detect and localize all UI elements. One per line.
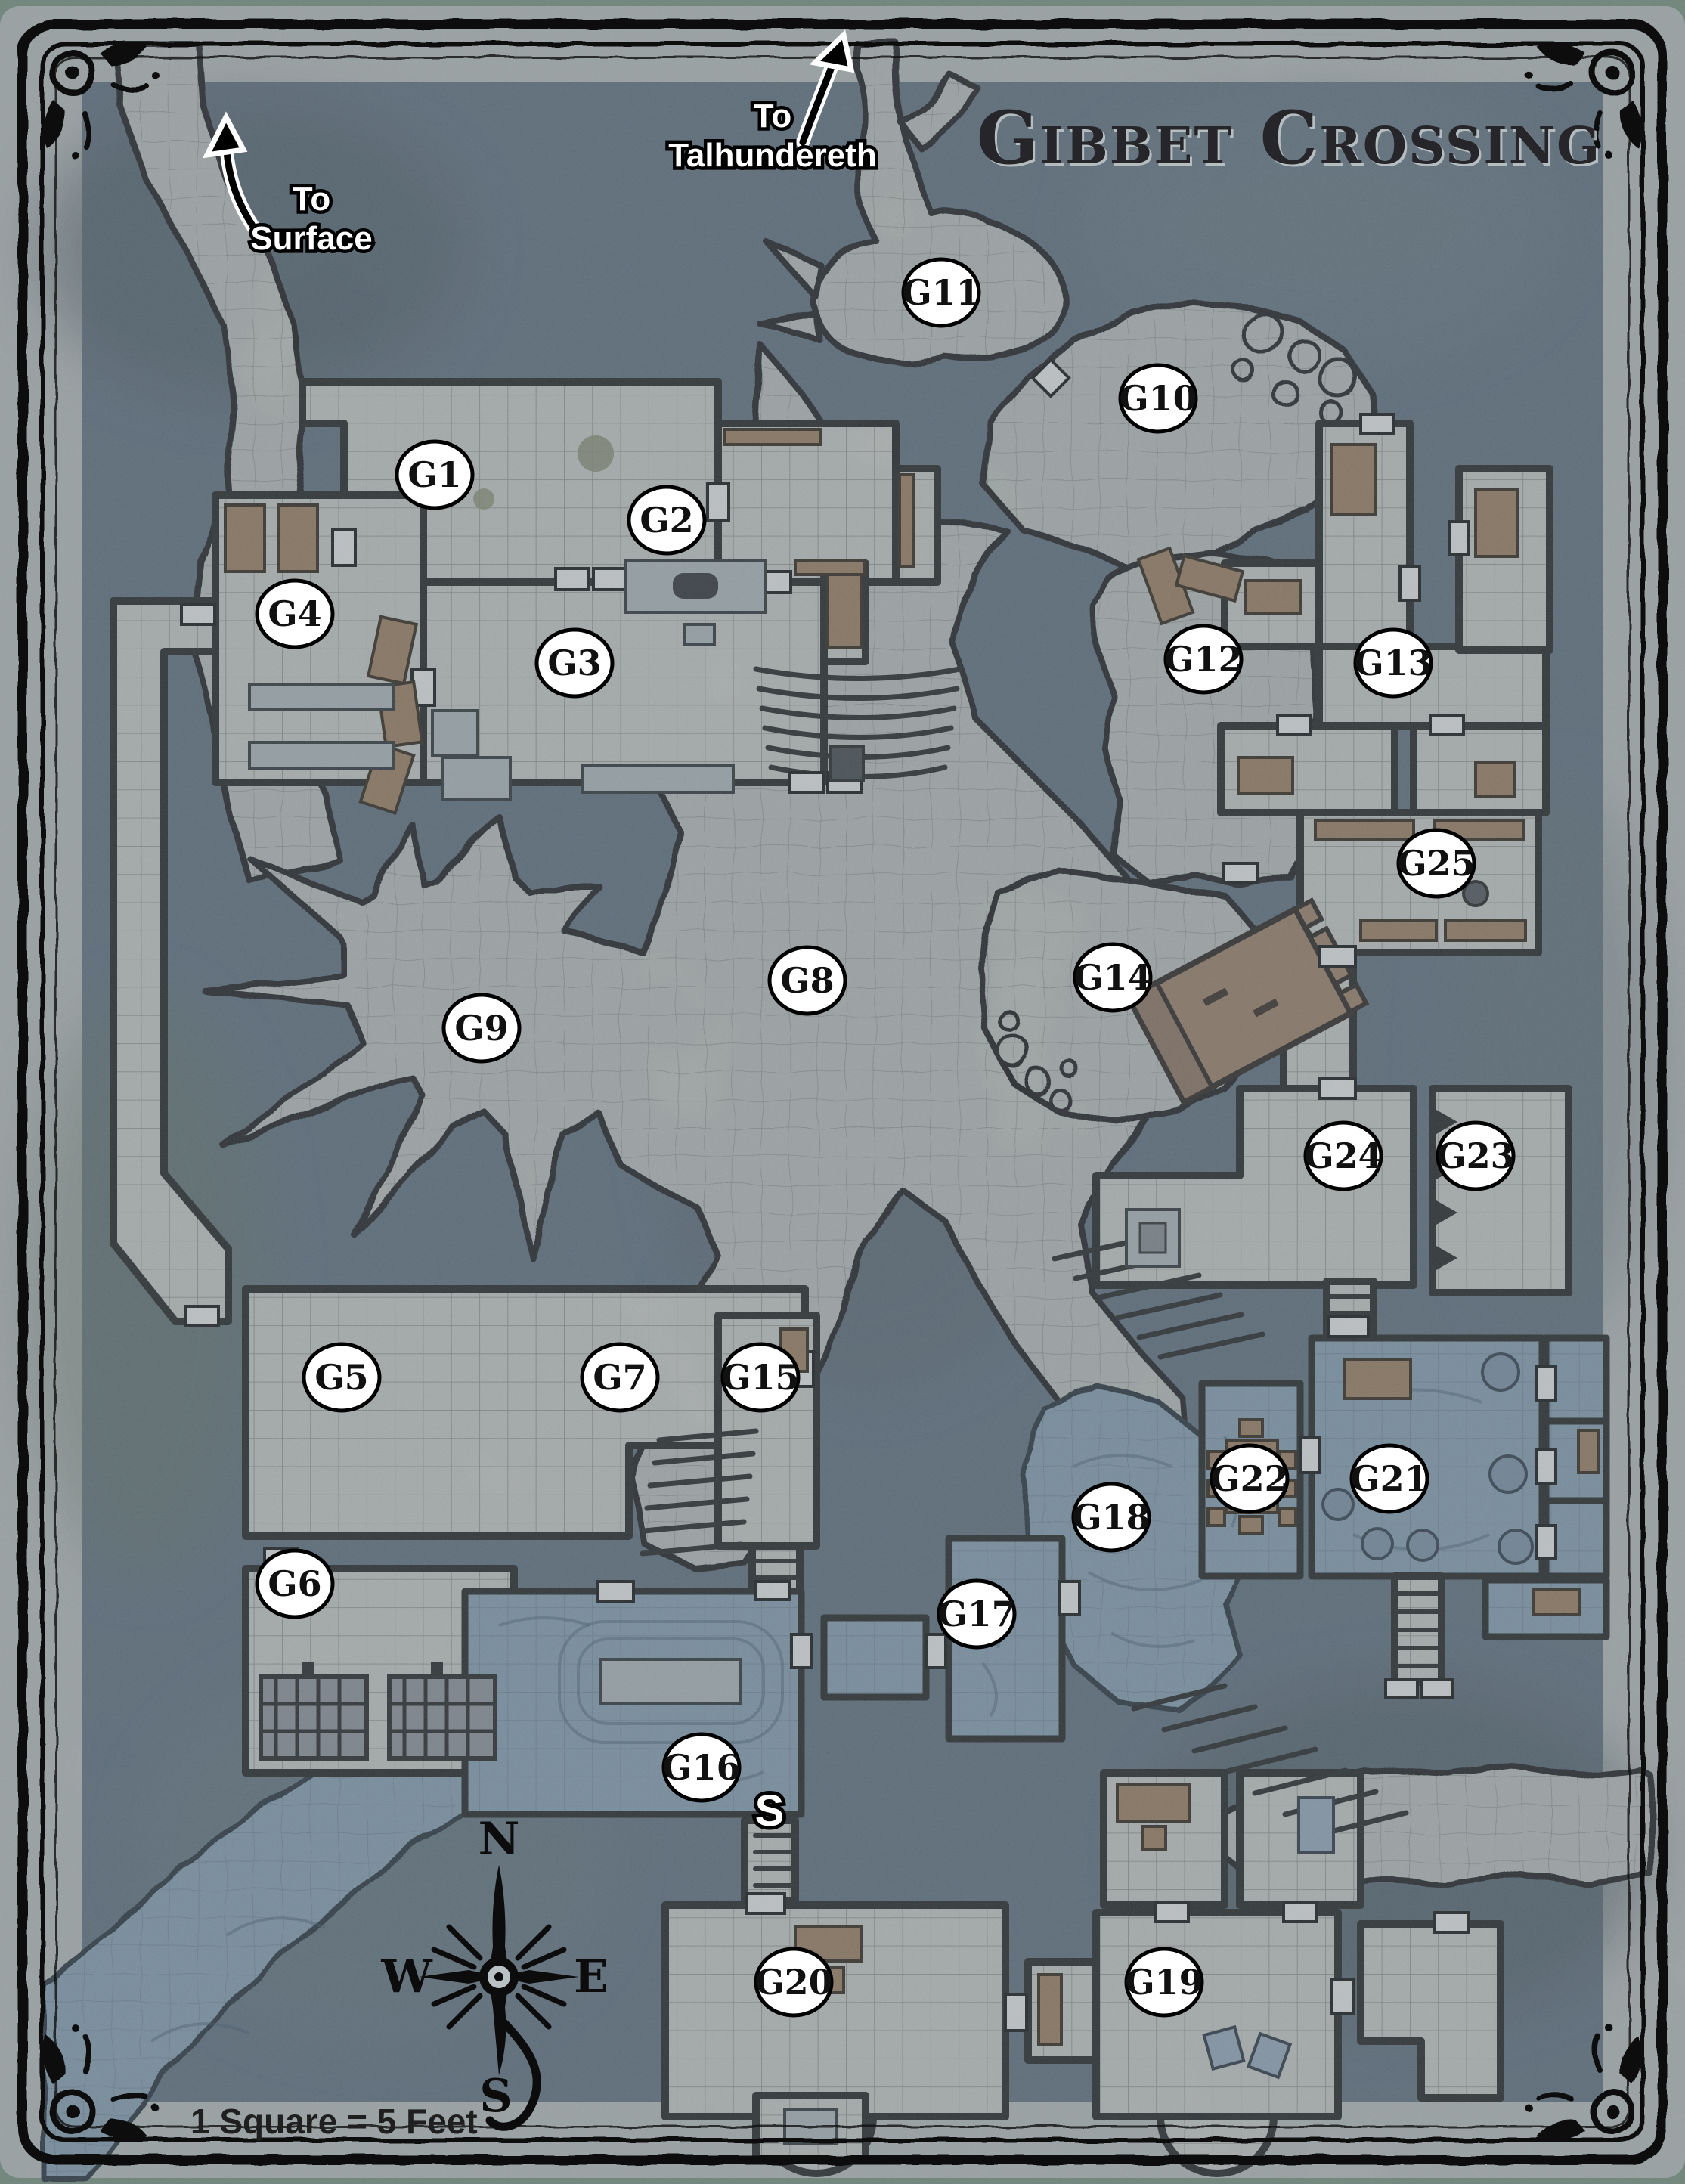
room-label-text-g23: G23 — [1436, 1135, 1514, 1176]
room-label-text-g14: G14 — [1073, 957, 1151, 998]
room-label-text-g8: G8 — [780, 960, 834, 1001]
room-label-text-g18: G18 — [1072, 1497, 1150, 1538]
compass-north: N — [479, 1813, 520, 1866]
scale-note: 1 Square = 5 Feet — [190, 2102, 478, 2141]
room-label-text-g19: G19 — [1125, 1962, 1203, 2003]
secret-stairs-marker: S — [755, 1786, 785, 1835]
room-label-text-g5: G5 — [314, 1357, 368, 1398]
room-label-text-g15: G15 — [721, 1357, 799, 1398]
room-label-text-g9: G9 — [454, 1008, 508, 1049]
room-label-text-g11: G11 — [902, 272, 980, 313]
to-surface-line1: To — [293, 181, 331, 218]
map-title: Gibbet Crossing — [977, 95, 1601, 181]
room-label-text-g22: G22 — [1210, 1458, 1288, 1499]
room-label-text-g10: G10 — [1119, 378, 1197, 419]
to-surface-line2: Surface — [250, 220, 372, 257]
compass-south: S — [479, 2070, 512, 2123]
dungeon-map-canvas: N W E S G1G2G3G4G5G6G7G8G9G10G11G12G13G1… — [0, 0, 1685, 2184]
room-label-text-g25: G25 — [1397, 843, 1475, 884]
to-talhundereth-line1: To — [754, 98, 792, 135]
room-label-text-g21: G21 — [1350, 1458, 1428, 1499]
compass-east: E — [574, 1950, 609, 2003]
grain-light-overlay — [23, 23, 1662, 2161]
room-label-text-g6: G6 — [268, 1563, 321, 1604]
room-label-text-g7: G7 — [593, 1357, 646, 1398]
room-label-text-g2: G2 — [640, 500, 693, 541]
room-label-text-g13: G13 — [1354, 643, 1432, 683]
room-label-text-g20: G20 — [754, 1962, 832, 2003]
room-label-text-g24: G24 — [1304, 1135, 1382, 1176]
room-label-text-g3: G3 — [547, 643, 601, 683]
room-label-text-g1: G1 — [407, 454, 461, 495]
to-talhundereth-line2: Talhundereth — [668, 137, 876, 174]
room-label-text-g16: G16 — [662, 1747, 740, 1788]
room-label-text-g4: G4 — [268, 593, 321, 634]
compass-west: W — [380, 1950, 433, 2003]
room-label-text-g17: G17 — [937, 1594, 1015, 1634]
map-page: N W E S G1G2G3G4G5G6G7G8G9G10G11G12G13G1… — [0, 0, 1685, 2184]
room-label-text-g12: G12 — [1164, 639, 1242, 680]
